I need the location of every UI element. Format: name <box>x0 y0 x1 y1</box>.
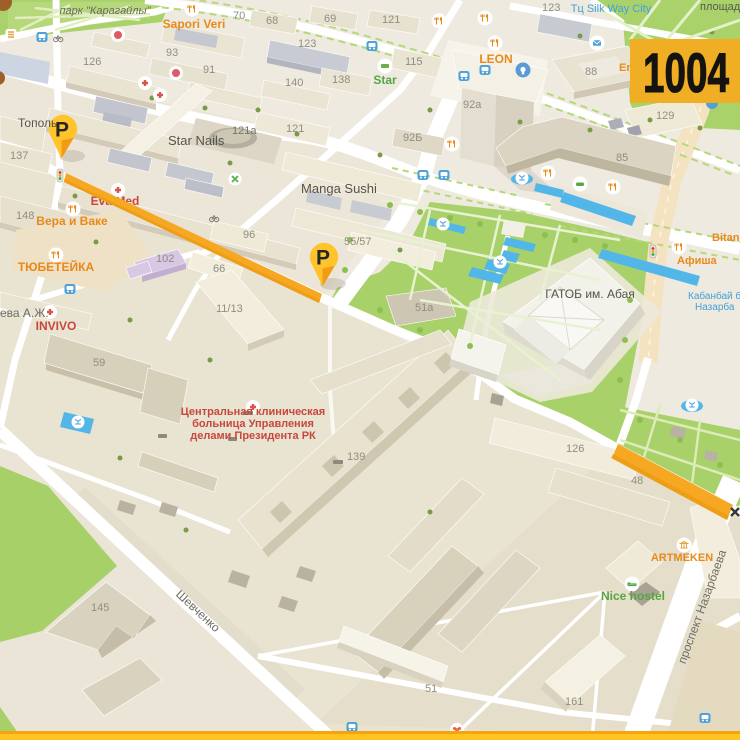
svg-text:121а: 121а <box>232 125 257 137</box>
svg-text:48: 48 <box>631 475 643 487</box>
svg-text:92Б: 92Б <box>403 132 422 144</box>
svg-text:Тополь: Тополь <box>18 116 57 130</box>
svg-text:121: 121 <box>286 123 304 135</box>
svg-text:88: 88 <box>585 66 597 78</box>
svg-text:126: 126 <box>566 443 584 455</box>
svg-text:больница Управления: больница Управления <box>192 418 314 430</box>
svg-text:Bitang: Bitang <box>712 232 740 244</box>
svg-text:137: 137 <box>10 150 28 162</box>
svg-text:Афиша: Афиша <box>677 255 717 267</box>
svg-text:Тц Silk Way City: Тц Silk Way City <box>571 3 652 15</box>
svg-text:Назарба: Назарба <box>695 301 735 313</box>
svg-text:1004: 1004 <box>643 41 729 104</box>
svg-text:51а: 51а <box>415 302 434 314</box>
svg-text:148: 148 <box>16 210 34 222</box>
svg-text:делами Президента РК: делами Президента РК <box>190 430 316 442</box>
svg-text:85: 85 <box>616 152 628 164</box>
svg-text:Star: Star <box>373 73 397 87</box>
svg-text:P: P <box>316 247 330 270</box>
svg-text:Sapori Veri: Sapori Veri <box>163 17 226 31</box>
svg-text:123: 123 <box>542 2 560 14</box>
svg-text:Manga Sushi: Manga Sushi <box>301 181 377 196</box>
svg-text:139: 139 <box>347 451 365 463</box>
svg-text:121: 121 <box>382 14 400 26</box>
svg-text:Nice hostel: Nice hostel <box>601 589 665 603</box>
svg-text:123: 123 <box>298 38 316 50</box>
svg-text:68: 68 <box>266 15 278 27</box>
svg-text:Star Nails: Star Nails <box>168 133 225 148</box>
svg-text:161: 161 <box>565 696 583 708</box>
svg-text:126: 126 <box>83 56 101 68</box>
svg-text:11/13: 11/13 <box>216 303 243 315</box>
svg-text:92a: 92a <box>463 99 482 111</box>
svg-text:66: 66 <box>213 263 225 275</box>
svg-text:102: 102 <box>156 253 174 265</box>
svg-text:ARTMEKEN: ARTMEKEN <box>651 552 713 564</box>
svg-text:93: 93 <box>166 47 178 59</box>
svg-text:Вера и Ваке: Вера и Ваке <box>36 214 108 228</box>
svg-text:LEON: LEON <box>479 52 512 66</box>
svg-text:Центральная клиническая: Центральная клиническая <box>181 406 325 418</box>
svg-text:145: 145 <box>91 602 109 614</box>
svg-text:площадь: площадь <box>700 1 740 13</box>
svg-text:ГАТОБ им. Абая: ГАТОБ им. Абая <box>545 287 635 301</box>
svg-text:115: 115 <box>405 56 423 68</box>
svg-text:59: 59 <box>93 357 105 369</box>
svg-text:129: 129 <box>656 110 674 122</box>
svg-text:96: 96 <box>243 229 255 241</box>
svg-text:138: 138 <box>332 74 350 86</box>
svg-text:51: 51 <box>425 683 437 695</box>
svg-text:INVIVO: INVIVO <box>36 319 77 333</box>
svg-text:ТЮБЕТЕЙКА: ТЮБЕТЕЙКА <box>18 259 95 274</box>
svg-text:91: 91 <box>203 64 215 76</box>
svg-text:140: 140 <box>285 77 303 89</box>
svg-text:парк "Карагайлы": парк "Карагайлы" <box>59 5 151 17</box>
svg-text:ева А.Ж.: ева А.Ж. <box>0 306 49 320</box>
svg-text:69: 69 <box>324 13 336 25</box>
svg-text:70: 70 <box>233 10 245 22</box>
svg-text:55/57: 55/57 <box>344 236 372 248</box>
svg-text:Кабанбай бат: Кабанбай бат <box>688 290 740 302</box>
